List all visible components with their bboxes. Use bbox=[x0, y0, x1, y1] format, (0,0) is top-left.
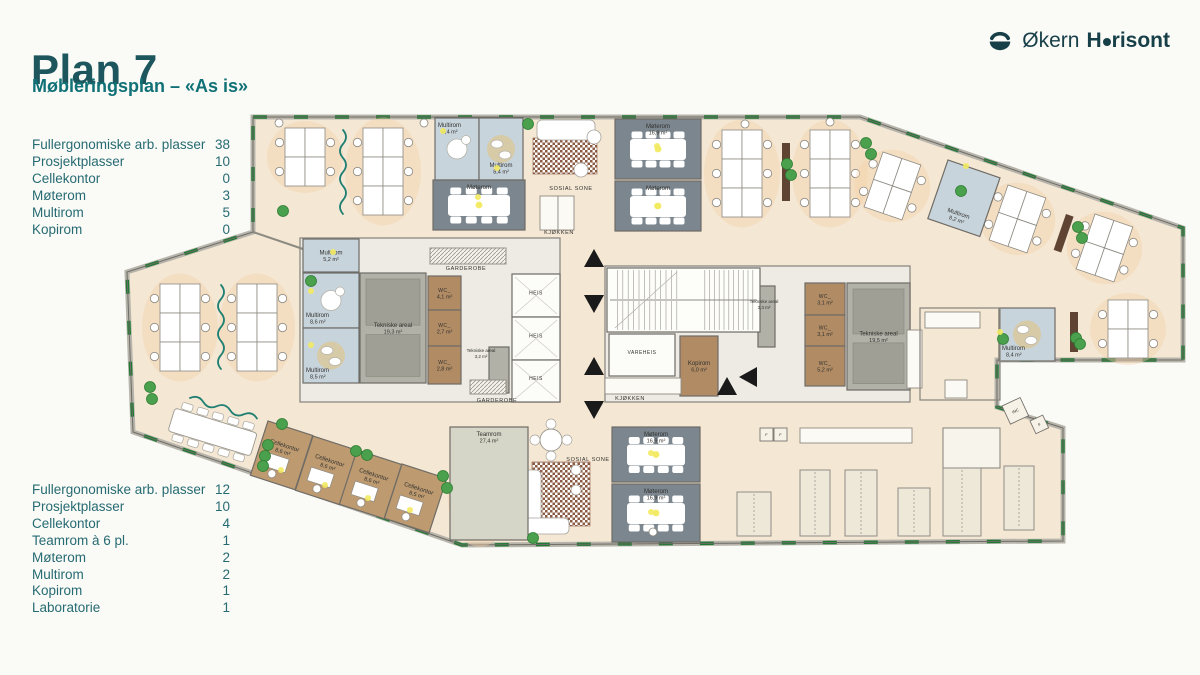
ceiling-light bbox=[476, 202, 483, 209]
plant bbox=[523, 119, 534, 130]
conf-chair bbox=[674, 218, 685, 225]
ceiling-light bbox=[407, 507, 413, 513]
room-moterom-top-mid: Møterom16,9 m² bbox=[615, 119, 701, 179]
plant bbox=[866, 149, 877, 160]
room-vareheis: VAREHEIS bbox=[609, 334, 675, 376]
conf-chair bbox=[660, 161, 671, 168]
plant bbox=[1075, 339, 1086, 350]
desk bbox=[305, 157, 325, 186]
lounge-seat bbox=[499, 151, 511, 159]
garderobe-lockers bbox=[430, 248, 506, 264]
cafe-chair bbox=[546, 419, 556, 429]
ceiling-light bbox=[963, 163, 969, 169]
room-tekniske-19-5: Tekniske areal19,5 m² bbox=[847, 283, 910, 390]
room-wc-4-1: WC_4,1 m² bbox=[428, 276, 461, 310]
conf-chair bbox=[629, 496, 640, 503]
room-label: Møterom bbox=[646, 186, 670, 192]
desk bbox=[257, 284, 277, 313]
plant bbox=[263, 440, 274, 451]
lounge-seat bbox=[1025, 337, 1037, 345]
cafe-chair bbox=[530, 435, 540, 445]
ceiling-light bbox=[648, 509, 654, 515]
plant bbox=[277, 419, 288, 430]
kitchen-counter bbox=[540, 196, 558, 230]
desk bbox=[1128, 329, 1148, 358]
plant bbox=[278, 206, 289, 217]
desk-chair bbox=[800, 198, 808, 206]
zone-label: 3,2 m² bbox=[475, 354, 488, 359]
conf-chair bbox=[497, 217, 508, 224]
desk bbox=[160, 313, 180, 342]
room-label: Møterom bbox=[467, 185, 491, 191]
room-area: 8,4 m² bbox=[1006, 353, 1022, 359]
conf-chair bbox=[672, 437, 683, 444]
desk-chair bbox=[800, 140, 808, 148]
room-area: 5,2 m² bbox=[323, 257, 339, 263]
ceiling-light bbox=[308, 342, 314, 348]
desk bbox=[810, 159, 830, 188]
desk-chair bbox=[404, 167, 412, 175]
sofa bbox=[523, 518, 569, 534]
plant bbox=[442, 483, 453, 494]
room-area: 8,6 m² bbox=[310, 320, 326, 326]
desk-chair bbox=[404, 196, 412, 204]
desk-chair bbox=[353, 196, 361, 204]
desk bbox=[830, 159, 850, 188]
plant bbox=[998, 334, 1009, 345]
room-label: WC_ bbox=[438, 288, 451, 294]
kitchen-counter bbox=[945, 380, 967, 398]
tan-rug bbox=[317, 342, 345, 370]
room-wc-3-1-b: WC_3,1 m² bbox=[805, 315, 845, 346]
room-label: WC_ bbox=[819, 294, 832, 300]
desk-cluster bbox=[267, 121, 343, 193]
plant bbox=[260, 451, 271, 462]
desk bbox=[1128, 300, 1148, 329]
conf-chair bbox=[629, 466, 640, 473]
conf-chair bbox=[632, 189, 643, 196]
desk-chair bbox=[278, 323, 286, 331]
plant bbox=[258, 461, 269, 472]
desk bbox=[257, 342, 277, 371]
desk bbox=[305, 128, 325, 157]
ceiling-light bbox=[330, 249, 336, 255]
tan-rug bbox=[1013, 321, 1041, 349]
room-wc-2-8: WC_2,8 m² bbox=[428, 346, 461, 384]
room-multirom-5-2: Multirom5,2 m² bbox=[303, 239, 359, 272]
desk-chair bbox=[763, 140, 771, 148]
zone-label: GARDEROBE bbox=[446, 266, 487, 272]
room-wc-5-2: WC_5,2 m² bbox=[805, 346, 845, 386]
room-label: WC_ bbox=[819, 361, 832, 367]
floor-plan: Multirom8,4 m²Multirom8,4 m²MøteromMøter… bbox=[0, 0, 1200, 675]
room-area: 3,1 m² bbox=[817, 301, 833, 307]
desk-chair bbox=[1149, 310, 1157, 318]
desk-chair bbox=[404, 138, 412, 146]
room-area: 27,4 m² bbox=[480, 439, 499, 445]
lounge-seat bbox=[1017, 326, 1029, 334]
plant bbox=[786, 170, 797, 181]
desk-chair bbox=[763, 169, 771, 177]
ceiling-light bbox=[494, 165, 500, 171]
room-label: Multirom bbox=[438, 123, 461, 129]
plant bbox=[861, 138, 872, 149]
desk-chair bbox=[712, 198, 720, 206]
desk-chair bbox=[326, 167, 334, 175]
conf-chair bbox=[674, 161, 685, 168]
room-area: 2,8 m² bbox=[437, 367, 453, 373]
desk bbox=[383, 157, 403, 186]
desk-chair bbox=[712, 169, 720, 177]
ceiling-light bbox=[278, 467, 284, 473]
column bbox=[826, 118, 834, 126]
room-heis-2: HEIS bbox=[512, 317, 560, 360]
conf-chair bbox=[450, 217, 461, 224]
desk bbox=[1108, 300, 1128, 329]
equipment-block bbox=[853, 343, 904, 384]
conf-chair bbox=[643, 466, 654, 473]
room-area: 16,9 m² bbox=[647, 496, 666, 502]
equipment-block bbox=[366, 279, 420, 325]
desk-cluster bbox=[219, 274, 295, 382]
room-label: Tekniske areal bbox=[859, 332, 897, 338]
room-kopirom: Kopirom6,0 m² bbox=[680, 336, 718, 396]
stairwell bbox=[607, 268, 760, 332]
conf-chair bbox=[629, 437, 640, 444]
conf-chair bbox=[481, 217, 492, 224]
lab-appliance: F bbox=[774, 428, 787, 441]
room-label: VAREHEIS bbox=[628, 350, 657, 356]
plant bbox=[145, 382, 156, 393]
room-area: 3,1 m² bbox=[817, 332, 833, 338]
room-label: HEIS bbox=[529, 334, 543, 340]
desk bbox=[160, 342, 180, 371]
plant bbox=[438, 471, 449, 482]
desk-chair bbox=[712, 140, 720, 148]
desk-chair bbox=[150, 352, 158, 360]
desk bbox=[363, 128, 383, 157]
desk bbox=[742, 159, 762, 188]
kitchen-counter bbox=[605, 378, 681, 394]
cafe-chair bbox=[546, 451, 556, 461]
lab-bench bbox=[898, 488, 930, 536]
room-label: WC_ bbox=[819, 326, 832, 332]
desk-chair bbox=[150, 323, 158, 331]
desk bbox=[237, 284, 257, 313]
ceiling-light bbox=[648, 450, 654, 456]
desk bbox=[830, 130, 850, 159]
room-teamrom: Teamrom27,4 m² bbox=[450, 427, 528, 540]
desk-chair bbox=[227, 352, 235, 360]
ceiling-light bbox=[997, 329, 1003, 335]
conf-chair bbox=[632, 218, 643, 225]
desk-chair bbox=[227, 323, 235, 331]
zone-label: SOSIAL SONE bbox=[566, 457, 609, 463]
desk-chair bbox=[278, 352, 286, 360]
plant bbox=[351, 446, 362, 457]
room-label: HEIS bbox=[529, 376, 543, 382]
room-wc-3-1-a: WC_3,1 m² bbox=[805, 283, 845, 315]
room-heis-1: HEIS bbox=[512, 274, 560, 317]
plant bbox=[306, 276, 317, 287]
ceiling-light bbox=[654, 203, 660, 209]
equipment-block bbox=[853, 289, 904, 334]
desk bbox=[257, 313, 277, 342]
desk-chair bbox=[851, 140, 859, 148]
room-multirom-8-4-right: Multirom8,4 m² bbox=[999, 308, 1055, 361]
conf-chair bbox=[672, 466, 683, 473]
conf-chair bbox=[672, 525, 683, 532]
room-label: HEIS bbox=[529, 291, 543, 297]
column bbox=[420, 119, 428, 127]
desk-chair bbox=[763, 198, 771, 206]
desk bbox=[285, 128, 305, 157]
conf-chair bbox=[629, 525, 640, 532]
desk bbox=[830, 188, 850, 217]
ceiling-light bbox=[440, 128, 446, 134]
kitchen-counter bbox=[925, 312, 980, 328]
desk bbox=[742, 130, 762, 159]
room-label: Multirom bbox=[306, 313, 329, 319]
desk bbox=[237, 313, 257, 342]
desk-cluster bbox=[345, 118, 421, 226]
room-area: 8,5 m² bbox=[310, 375, 326, 381]
room-area: 2,7 m² bbox=[437, 330, 453, 336]
room-area: 16,9 m² bbox=[649, 131, 668, 137]
desk-cluster bbox=[1090, 293, 1166, 365]
plant bbox=[1073, 222, 1084, 233]
cafe-table bbox=[540, 429, 562, 451]
room-area: 16,9 m² bbox=[647, 439, 666, 445]
room-label: WC_ bbox=[438, 323, 451, 329]
room-area: 19,3 m² bbox=[384, 330, 403, 336]
lab-bench bbox=[943, 468, 981, 536]
lounge-seat bbox=[491, 140, 503, 148]
desk-chair bbox=[326, 138, 334, 146]
plant bbox=[362, 450, 373, 461]
conf-chair bbox=[632, 132, 643, 139]
conf-chair bbox=[466, 217, 477, 224]
plant bbox=[1077, 233, 1088, 244]
conf-chair bbox=[450, 188, 461, 195]
room-area: 19,5 m² bbox=[869, 338, 888, 344]
desk-chair bbox=[1098, 339, 1106, 347]
desk bbox=[1108, 329, 1128, 358]
desk-chair bbox=[227, 294, 235, 302]
room-label: Teamrom bbox=[476, 432, 501, 438]
conf-chair bbox=[497, 188, 508, 195]
plant bbox=[782, 159, 793, 170]
desk-chair bbox=[201, 352, 209, 360]
lab-bench bbox=[737, 492, 771, 536]
room-multirom-top-1: Multirom8,4 m² bbox=[435, 118, 479, 180]
kitchen-counter bbox=[800, 428, 912, 443]
conf-chair bbox=[646, 218, 657, 225]
desk-chair bbox=[1149, 339, 1157, 347]
ceiling-light bbox=[322, 482, 328, 488]
desk bbox=[810, 188, 830, 217]
chair bbox=[336, 287, 345, 296]
desk-chair bbox=[278, 294, 286, 302]
zone-label: Tekniske areal bbox=[467, 348, 496, 353]
desk bbox=[160, 284, 180, 313]
zone-label: Tekniske areal bbox=[750, 299, 779, 304]
room-label: WC_ bbox=[438, 360, 451, 366]
lab-bench bbox=[1004, 466, 1034, 530]
desk bbox=[237, 342, 257, 371]
lounge-chair bbox=[571, 485, 581, 495]
room-label: Tekniske areal bbox=[374, 323, 412, 329]
lounge-chair bbox=[571, 465, 581, 475]
room-label: Multirom bbox=[306, 368, 329, 374]
zone-label: GARDEROBE bbox=[477, 398, 518, 404]
desk bbox=[810, 130, 830, 159]
lounge-seat bbox=[321, 347, 333, 355]
desk bbox=[722, 188, 742, 217]
room-area: 6,0 m² bbox=[691, 368, 707, 374]
room-label: Møterom bbox=[644, 489, 668, 495]
desk bbox=[285, 157, 305, 186]
column bbox=[741, 120, 749, 128]
room-heis-3: HEIS bbox=[512, 360, 560, 402]
plant bbox=[956, 186, 967, 197]
room-label: Møterom bbox=[646, 124, 670, 130]
ceiling-light bbox=[475, 194, 481, 200]
room-moterom-top-left: Møterom bbox=[433, 180, 525, 230]
room-area: 5,2 m² bbox=[817, 368, 833, 374]
ceiling-light bbox=[654, 143, 660, 149]
lounge-seat bbox=[329, 358, 341, 366]
column bbox=[649, 528, 657, 536]
garderobe-lockers bbox=[470, 380, 506, 394]
sofa bbox=[537, 120, 595, 140]
desk-chair bbox=[275, 138, 283, 146]
room-label: Kopirom bbox=[688, 361, 710, 367]
desk-cluster bbox=[142, 274, 218, 382]
desk bbox=[383, 186, 403, 215]
desk-chair bbox=[1098, 310, 1106, 318]
room-area: 4,1 m² bbox=[437, 295, 453, 301]
desk-chair bbox=[201, 294, 209, 302]
ceiling-light bbox=[308, 288, 314, 294]
plant bbox=[147, 394, 158, 405]
chair bbox=[462, 136, 471, 145]
desk-chair bbox=[150, 294, 158, 302]
conf-chair bbox=[660, 218, 671, 225]
desk-chair bbox=[275, 167, 283, 175]
zone-label: 3,3 m² bbox=[758, 305, 771, 310]
conf-chair bbox=[646, 161, 657, 168]
desk-chair bbox=[353, 167, 361, 175]
conf-chair bbox=[674, 132, 685, 139]
small-room bbox=[943, 428, 1000, 468]
desk bbox=[363, 186, 383, 215]
desk bbox=[180, 284, 200, 313]
lounge-chair bbox=[587, 130, 601, 144]
desk bbox=[363, 157, 383, 186]
lounge-chair bbox=[574, 163, 588, 177]
column bbox=[275, 119, 283, 127]
desk bbox=[722, 159, 742, 188]
tan-rug bbox=[487, 135, 515, 163]
zone-label: KJØKKEN bbox=[544, 230, 574, 236]
room-moterom-bottom-1: Møterom16,9 m² bbox=[612, 427, 700, 482]
room-wc-2-7: WC_2,7 m² bbox=[428, 310, 461, 346]
desk bbox=[383, 128, 403, 157]
conf-chair bbox=[672, 496, 683, 503]
zone-label: KJØKKEN bbox=[615, 396, 645, 402]
conf-chair bbox=[632, 161, 643, 168]
room-label: Møterom bbox=[644, 432, 668, 438]
conf-chair bbox=[658, 525, 669, 532]
bench-shape bbox=[800, 470, 830, 536]
desk-chair bbox=[201, 323, 209, 331]
lab-appliance: F bbox=[760, 428, 773, 441]
room-tekniske-19-3: Tekniske areal19,3 m² bbox=[360, 273, 426, 383]
equipment-block bbox=[366, 335, 420, 377]
slide: { "header": { "title": "Plan 7", "subtit… bbox=[0, 0, 1200, 675]
desk bbox=[180, 313, 200, 342]
ceiling-light bbox=[365, 495, 371, 501]
desk bbox=[742, 188, 762, 217]
room-multirom-8-5: Multirom8,5 m² bbox=[303, 328, 359, 383]
cafe-chair bbox=[562, 435, 572, 445]
kitchen-counter bbox=[558, 196, 574, 230]
lab-bench bbox=[800, 470, 830, 536]
conf-chair bbox=[658, 466, 669, 473]
desk bbox=[722, 130, 742, 159]
desk bbox=[180, 342, 200, 371]
plant bbox=[528, 533, 539, 544]
desk-chair bbox=[353, 138, 361, 146]
bench-shape bbox=[845, 470, 877, 536]
zone-label: SOSIAL SONE bbox=[549, 186, 592, 192]
conf-chair bbox=[674, 189, 685, 196]
lab-bench bbox=[845, 470, 877, 536]
room-label: Multirom bbox=[1002, 346, 1025, 352]
desk-chair bbox=[800, 169, 808, 177]
room-multirom-top-2: Multirom8,4 m² bbox=[479, 118, 523, 180]
room-label: Multirom bbox=[489, 163, 512, 169]
desk-cluster bbox=[704, 120, 780, 228]
